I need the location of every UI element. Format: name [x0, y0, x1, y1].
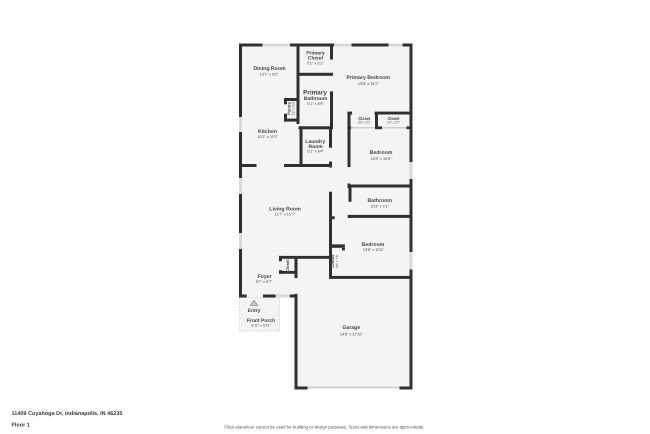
- svg-text:Bedroom: Bedroom: [362, 242, 385, 248]
- svg-text:Bedroom: Bedroom: [370, 150, 393, 156]
- svg-text:10'1" x 9'2": 10'1" x 9'2": [260, 73, 279, 77]
- svg-text:13'8" x 14'2": 13'8" x 14'2": [358, 82, 379, 86]
- svg-text:15'7" x 15'7": 15'7" x 15'7": [274, 213, 295, 217]
- svg-text:Bathroom: Bathroom: [367, 198, 392, 204]
- svg-text:Primary Bedroom: Primary Bedroom: [347, 75, 391, 81]
- svg-text:5'5" x 2'2": 5'5" x 2'2": [387, 120, 400, 124]
- svg-text:19'8" x 22'10": 19'8" x 22'10": [340, 333, 364, 337]
- svg-text:Floor plans/tour cannot be use: Floor plans/tour cannot be used for buil…: [224, 424, 424, 429]
- svg-text:5'1" x 8'9": 5'1" x 8'9": [307, 102, 324, 106]
- svg-text:10'1" x 11'5": 10'1" x 11'5": [257, 135, 278, 139]
- svg-text:2'8" x 7'6": 2'8" x 7'6": [335, 254, 339, 268]
- svg-text:Closet: Closet: [285, 259, 290, 272]
- svg-text:2'2" x 5'3": 2'2" x 5'3": [292, 100, 296, 116]
- svg-text:10'3" x 5'1": 10'3" x 5'1": [370, 204, 389, 208]
- svg-text:Entry: Entry: [248, 308, 261, 314]
- svg-text:Garage: Garage: [342, 325, 360, 331]
- svg-text:6'11" x 5'11": 6'11" x 5'11": [251, 323, 271, 327]
- svg-text:Dining Room: Dining Room: [253, 66, 286, 72]
- svg-text:5'1" x 5'1": 5'1" x 5'1": [307, 61, 324, 65]
- svg-text:Kitchen: Kitchen: [258, 129, 277, 135]
- svg-text:Floor 1: Floor 1: [12, 422, 30, 428]
- svg-text:10'3" x 10'0": 10'3" x 10'0": [371, 157, 392, 161]
- svg-text:11409 Cuyahoga Dr, Indianapoli: 11409 Cuyahoga Dr, Indianapolis, IN 4623…: [12, 411, 123, 417]
- svg-text:13'8" x 10'3": 13'8" x 10'3": [363, 248, 384, 252]
- svg-text:Bathroom: Bathroom: [304, 96, 328, 102]
- svg-text:4'6" x 2'2": 4'6" x 2'2": [358, 120, 371, 124]
- svg-text:5'1" x 6'4": 5'1" x 6'4": [307, 150, 324, 154]
- svg-text:9'7" x 6'7": 9'7" x 6'7": [256, 280, 273, 284]
